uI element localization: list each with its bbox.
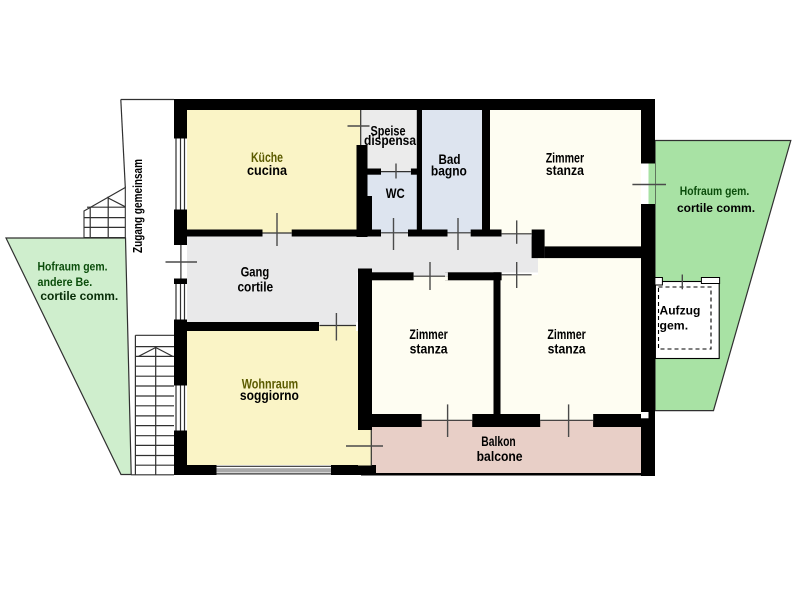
svg-text:Zugang gemeinsam: Zugang gemeinsam bbox=[130, 159, 145, 253]
svg-text:stanza: stanza bbox=[546, 163, 584, 178]
svg-text:bagno: bagno bbox=[431, 163, 467, 178]
svg-text:Balkon: Balkon bbox=[481, 434, 515, 449]
svg-text:WC: WC bbox=[386, 186, 405, 201]
svg-text:andere Be.: andere Be. bbox=[38, 275, 93, 289]
svg-text:cortile comm.: cortile comm. bbox=[40, 289, 118, 303]
svg-text:Gang: Gang bbox=[241, 264, 270, 279]
svg-text:Hofraum gem.: Hofraum gem. bbox=[680, 184, 749, 198]
svg-text:cucina: cucina bbox=[247, 163, 287, 178]
svg-text:soggiorno: soggiorno bbox=[240, 388, 299, 403]
svg-text:Zimmer: Zimmer bbox=[547, 327, 586, 342]
svg-text:Hofraum gem.: Hofraum gem. bbox=[38, 259, 108, 273]
svg-text:stanza: stanza bbox=[410, 342, 448, 357]
svg-text:Aufzug: Aufzug bbox=[660, 303, 701, 317]
svg-text:cortile: cortile bbox=[237, 279, 273, 294]
svg-text:stanza: stanza bbox=[548, 342, 586, 357]
svg-text:balcone: balcone bbox=[477, 449, 523, 464]
svg-text:Zimmer: Zimmer bbox=[409, 327, 448, 342]
svg-text:cortile comm.: cortile comm. bbox=[677, 201, 755, 215]
svg-text:dispensa: dispensa bbox=[364, 133, 416, 148]
svg-text:gem.: gem. bbox=[660, 319, 689, 333]
